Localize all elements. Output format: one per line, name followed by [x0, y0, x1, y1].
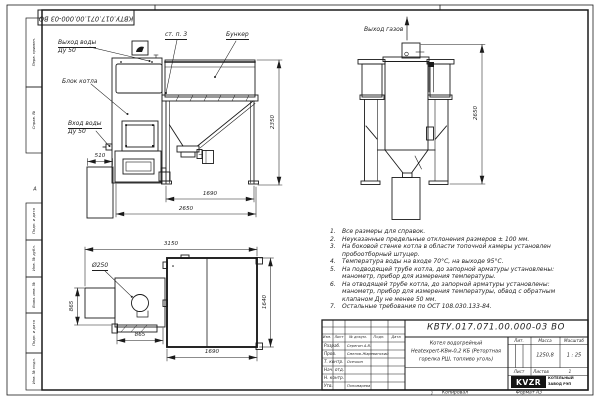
label-wall-ref: ст. п. 3	[165, 32, 187, 40]
scale-value: 1 : 25	[567, 354, 581, 359]
note-number: 3.	[330, 243, 342, 258]
drawing-sheet: КВТУ.017.071.00.000-03 ВО А Перв. примен…	[0, 0, 600, 400]
lit-label: Лит.	[514, 339, 524, 343]
note-item: 5.На подводящей трубе котла, до запорной…	[330, 266, 566, 281]
side-view-lines	[358, 17, 485, 220]
mass-value: 1250,8	[536, 354, 554, 359]
title-name-line2: Heatexpert-КВм-0,2 КБ (Ретортная	[411, 350, 501, 355]
technical-notes: 1.Все размеры для справок. 2.Неуказанные…	[330, 228, 566, 311]
note-text: Неуказанные предельные отклонения размер…	[342, 236, 566, 244]
dim-865-left: 865	[70, 301, 76, 312]
mass-label: Масса	[538, 339, 551, 343]
dim-1690-front: 1690	[203, 192, 217, 198]
dim-2650-side: 2650	[474, 106, 480, 120]
title-name-line3: горелка РШ, топливо уголь)	[419, 358, 493, 363]
row-label-utv: Утв.	[324, 384, 333, 388]
frame-label-inv-podl: Инв. № подл.	[32, 358, 36, 384]
note-number: 6.	[330, 281, 342, 304]
dim-865-bottom: 865	[135, 333, 146, 339]
frame-label-perv-primen: Перв. примен.	[32, 38, 36, 67]
drawing-linework	[0, 0, 600, 400]
frame-label-podp-data-1: Подп. и дата	[32, 208, 36, 234]
note-text: Температура воды на входе 70°С, на выход…	[342, 258, 566, 266]
scale-label: Масштаб	[564, 339, 584, 343]
note-item: 6.На отводящей трубе котла, до запорной …	[330, 281, 566, 304]
bottom-sheet-num: 1	[431, 392, 434, 396]
frame-label-sprav-no: Справ. №	[32, 111, 36, 129]
col-podp: Подп.	[374, 336, 385, 340]
label-boiler-block: Блок котла	[62, 79, 97, 85]
note-number: 7.	[330, 303, 342, 311]
note-text: На подводящей трубе котла, до запорной а…	[342, 266, 566, 281]
note-number: 5.	[330, 266, 342, 281]
copied-label: Копировал	[442, 392, 468, 397]
dim-2650-front: 2650	[179, 207, 193, 213]
note-text: Все размеры для справок.	[342, 228, 566, 236]
row-label-prov: Пров.	[324, 352, 336, 356]
row-name-razrab: Серегин А.В.	[347, 345, 371, 349]
kvzr-logo: KVZR	[511, 376, 546, 388]
dim-1640: 1640	[263, 295, 269, 309]
frame-label-vzam-inv: Взам. инв. №	[32, 282, 36, 308]
row-label-razrab: Разраб.	[324, 344, 340, 348]
note-item: 2.Неуказанные предельные отклонения разм…	[330, 236, 566, 244]
note-text: На боковой стенке котла в области топочн…	[342, 243, 566, 258]
sheets-label: Листов	[533, 369, 549, 373]
row-label-tkontr: Т. контр.	[324, 360, 343, 364]
note-item: 4.Температура воды на входе 70°С, на вых…	[330, 258, 566, 266]
col-data: Дата	[391, 336, 400, 340]
front-view-lines	[87, 40, 282, 218]
note-item: 1.Все размеры для справок.	[330, 228, 566, 236]
row-label-nachotd: Нач. отд.	[324, 368, 344, 372]
note-number: 2.	[330, 236, 342, 244]
col-doc: № докум.	[349, 336, 367, 340]
format-label: Формат А3	[516, 392, 542, 397]
dim-1690-top: 1690	[205, 350, 219, 356]
label-water-outlet-line2: Ду 50	[58, 48, 76, 54]
dim-3150: 3150	[164, 242, 178, 248]
row-name-prov: Смелов-Жаревинский	[347, 353, 389, 357]
dim-510: 510	[95, 154, 106, 160]
row-name-tkontr: Осечкин	[347, 361, 363, 365]
note-text: Остальные требования по ОСТ 108.030.133-…	[342, 303, 566, 311]
logo-caption-line1: КОТЕЛЬНЫЙ	[548, 377, 574, 381]
note-item: 7.Остальные требования по ОСТ 108.030.13…	[330, 303, 566, 311]
title-block-doc-number: КВТУ.017.071.00.000-03 ВО	[427, 324, 565, 333]
label-gas-outlet: Выход газов	[364, 27, 403, 33]
note-item: 3.На боковой стенке котла в области топо…	[330, 243, 566, 258]
frame-label-inv-dubl: Инв. № дубл.	[32, 245, 36, 271]
label-water-inlet-line2: Ду 50	[68, 129, 86, 135]
row-name-utv: Пономарева	[347, 385, 370, 389]
note-number: 1.	[330, 228, 342, 236]
top-stamp-doc-number: КВТУ.017.071.00.000-03 ВО	[39, 14, 133, 21]
col-izm: Изм.	[323, 336, 331, 340]
frame-zone-letter: А	[33, 188, 36, 193]
dim-diameter-250: Ø250	[92, 263, 108, 271]
col-list: Лист	[334, 336, 343, 340]
note-number: 4.	[330, 258, 342, 266]
logo-caption-line2: ЗАВОД РЭП	[548, 383, 571, 387]
title-name-line1: Котел водогрейный	[430, 342, 483, 347]
sheet-label: Лист	[514, 369, 525, 373]
sheets-value: 1	[569, 369, 572, 373]
dim-2350: 2350	[271, 115, 277, 129]
frame-label-podp-data-2: Подп. и дата	[32, 320, 36, 346]
row-label-nkontr: Н. контр.	[324, 376, 344, 380]
note-text: На отводящей трубе котла, до запорной ар…	[342, 281, 566, 304]
label-bunker: Бункер	[226, 32, 249, 40]
